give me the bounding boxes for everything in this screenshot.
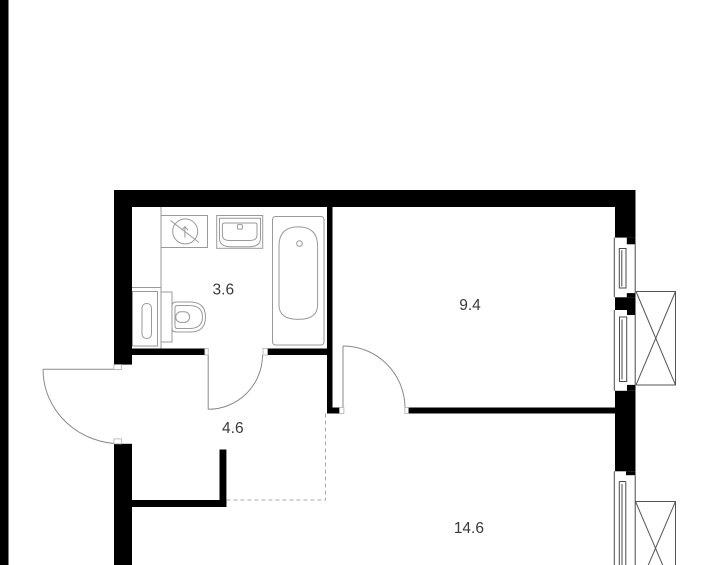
svg-text:14.6: 14.6 [454,520,484,537]
svg-text:3.6: 3.6 [213,282,235,299]
svg-text:4.6: 4.6 [222,420,244,437]
svg-text:9.4: 9.4 [459,297,481,314]
